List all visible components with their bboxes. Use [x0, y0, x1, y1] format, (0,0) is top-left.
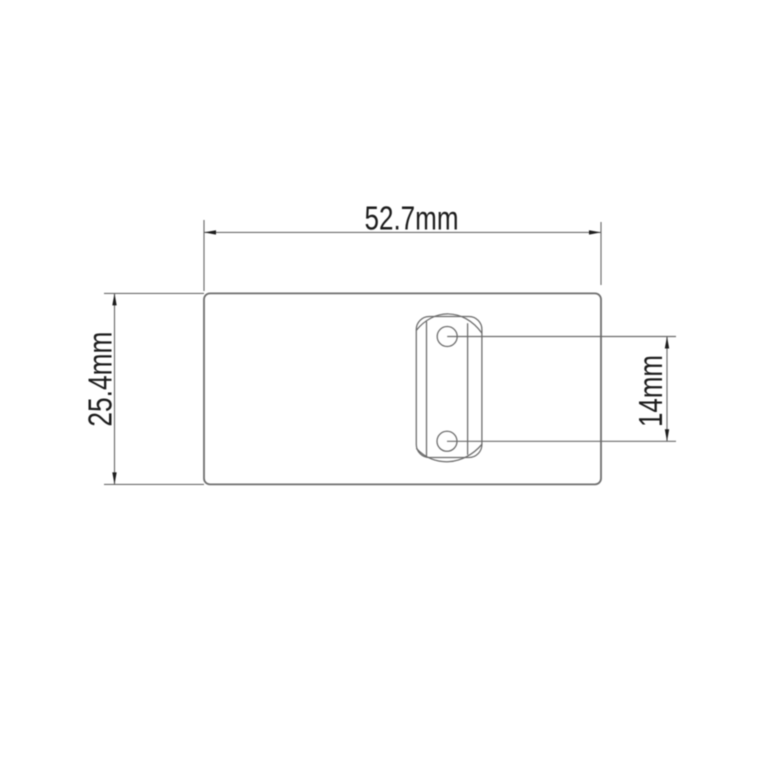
svg-text:25.4mm: 25.4mm: [82, 332, 119, 427]
svg-text:52.7mm: 52.7mm: [365, 200, 459, 237]
svg-text:14mm: 14mm: [632, 355, 669, 427]
